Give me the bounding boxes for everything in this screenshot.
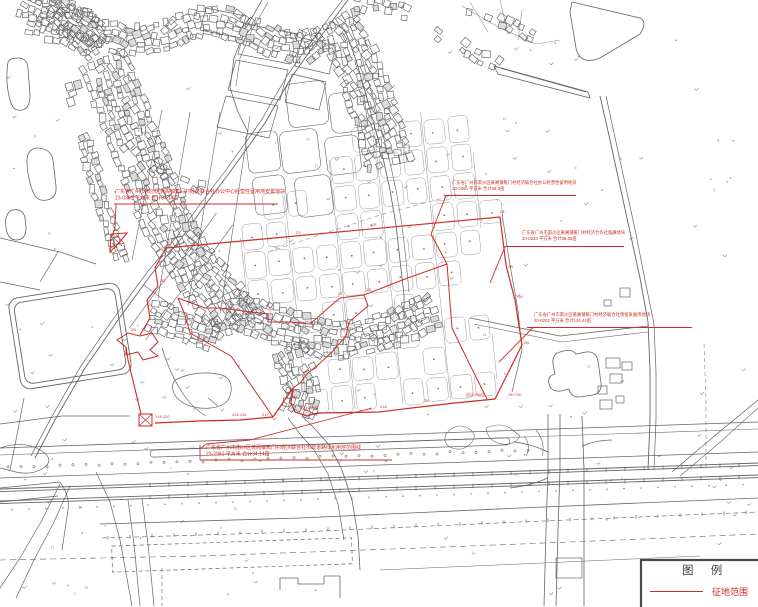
svg-text:6: 6 [373,393,375,397]
svg-text:28+740: 28+740 [508,392,522,397]
svg-text:17: 17 [315,164,319,168]
svg-text:16: 16 [306,138,310,142]
svg-text:出让258号: 出让258号 [300,404,319,410]
svg-text:3: 3 [137,323,139,327]
svg-text:14: 14 [471,551,475,555]
svg-text:26: 26 [222,300,227,305]
svg-text:20-0202 平方米 合计134.44亩: 20-0202 平方米 合计134.44亩 [534,317,592,324]
svg-text:广东省广州市南沙区黄阁镇蕉门村经济联合社市政道路绿化用地范围: 广东省广州市南沙区黄阁镇蕉门村经济联合社市政道路绿化用地范围线 [206,444,361,451]
svg-text:23: 23 [296,230,301,235]
svg-text:25: 25 [372,222,377,227]
svg-text:21: 21 [293,394,298,399]
svg-text:26: 26 [518,294,523,299]
svg-text:12: 12 [84,586,88,590]
svg-text:12: 12 [587,364,591,368]
svg-text:2B: 2B [131,327,136,332]
svg-text:28: 28 [500,209,505,214]
svg-text:广东省广州市南沙区黄阁镇蕉门村经济联合社办公中心经营性留用地: 广东省广州市南沙区黄阁镇蕉门村经济联合社办公中心经营性留用地安置地块 [115,188,285,195]
svg-text:27: 27 [338,291,343,296]
svg-text:9: 9 [621,477,623,481]
svg-text:16: 16 [483,333,487,337]
svg-text:218: 218 [380,404,387,409]
svg-text:出让258号: 出让258号 [466,391,485,397]
svg-text:218 216: 218 216 [232,412,247,417]
svg-text:8: 8 [34,135,36,139]
svg-text:11: 11 [503,117,507,121]
svg-text:23-0301 平方米 合计34.14亩: 23-0301 平方米 合计34.14亩 [115,195,179,202]
svg-text:24: 24 [148,302,153,307]
svg-text:7: 7 [275,141,277,145]
svg-text:9: 9 [100,131,102,135]
svg-text:图 例: 图 例 [682,563,729,577]
svg-text:2B: 2B [524,340,529,345]
svg-text:2B: 2B [424,398,429,403]
svg-text:2B: 2B [348,326,353,331]
svg-text:16: 16 [162,395,166,399]
svg-text:5: 5 [575,166,577,170]
svg-text:9: 9 [74,592,76,596]
svg-text:18: 18 [514,473,518,477]
svg-text:13: 13 [233,507,237,511]
svg-text:21: 21 [168,239,173,244]
svg-text:4: 4 [104,524,106,528]
svg-text:6: 6 [220,526,222,530]
svg-text:23-0306 平方米 合计38.3亩: 23-0306 平方米 合计38.3亩 [452,185,505,192]
svg-text:7: 7 [170,466,172,470]
svg-text:12: 12 [51,546,55,550]
svg-text:217: 217 [262,412,269,417]
svg-text:2B: 2B [508,264,513,269]
svg-text:6: 6 [373,469,375,473]
svg-text:2B: 2B [160,278,165,283]
svg-text:20-0233 平方米 合计38.08亩: 20-0233 平方米 合计38.08亩 [522,235,577,242]
svg-text:征地范围: 征地范围 [712,586,748,597]
svg-text:2B: 2B [366,287,371,292]
svg-text:23-2981 平方米 合计34.14亩: 23-2981 平方米 合计34.14亩 [206,451,270,458]
svg-text:9: 9 [714,188,716,192]
svg-text:219 220: 219 220 [155,414,170,419]
svg-text:2B: 2B [268,306,273,311]
svg-text:5: 5 [193,407,195,411]
